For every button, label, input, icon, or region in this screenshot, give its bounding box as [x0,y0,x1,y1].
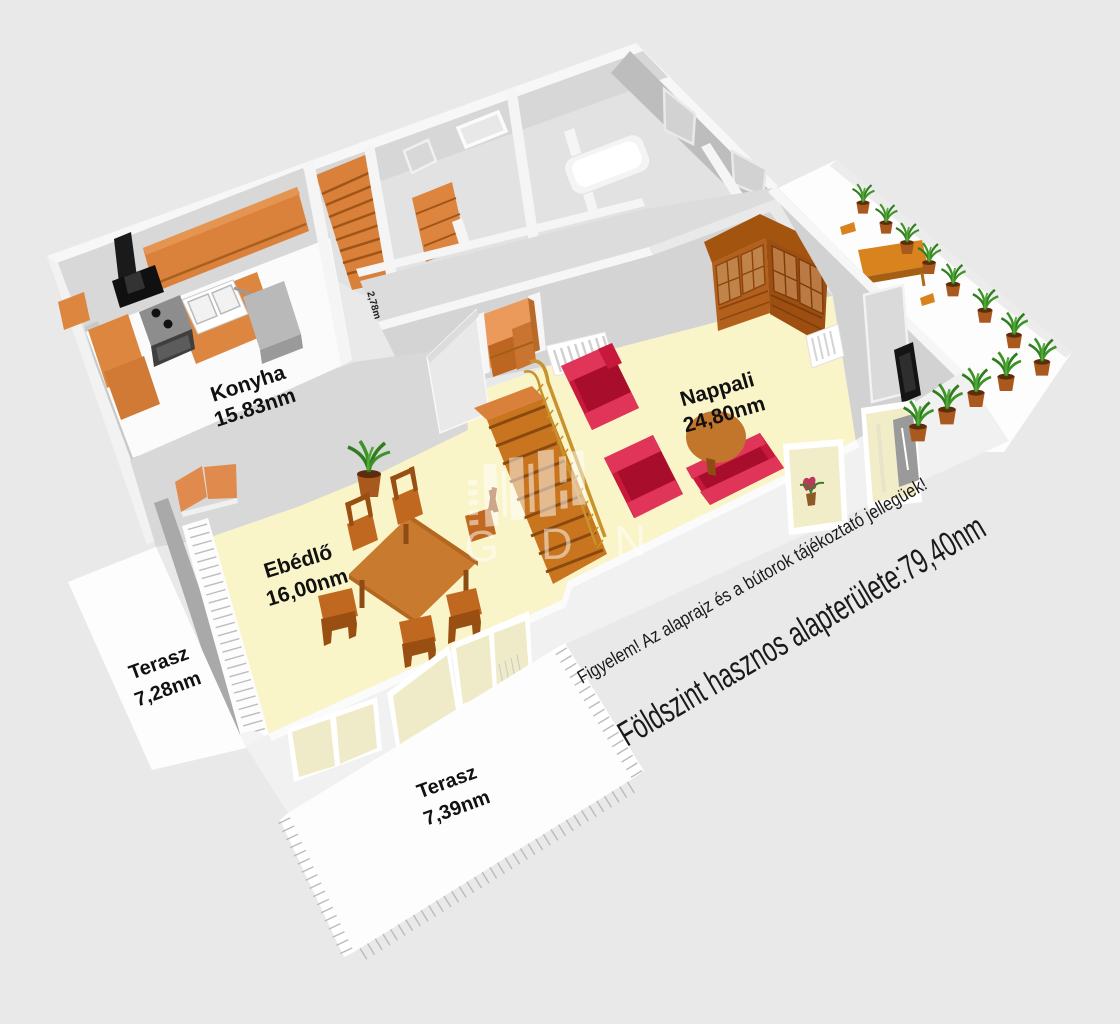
svg-text:GDN: GDN [464,515,689,572]
